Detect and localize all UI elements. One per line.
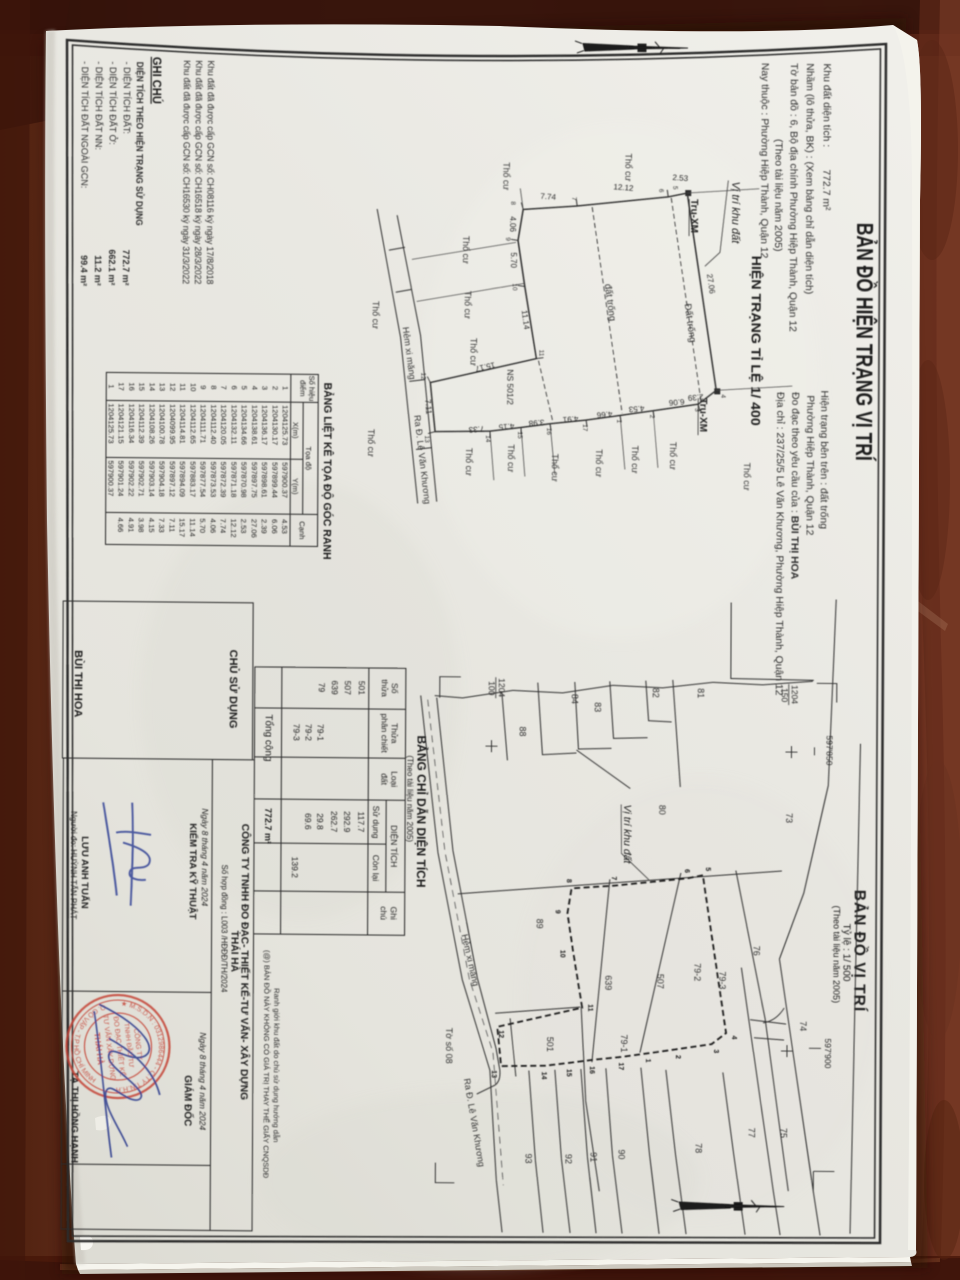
svg-text:2: 2 xyxy=(648,415,655,419)
svg-text:7: 7 xyxy=(610,876,617,880)
svg-text:1: 1 xyxy=(615,419,622,423)
svg-text:7.74: 7.74 xyxy=(540,192,557,202)
svg-text:(Theo tài liệu năm 2005): (Theo tài liệu năm 2005) xyxy=(405,755,414,842)
svg-text:75: 75 xyxy=(779,1128,789,1138)
svg-text:7.33: 7.33 xyxy=(157,518,166,533)
svg-text:4.66: 4.66 xyxy=(116,518,125,533)
svg-text:5.70: 5.70 xyxy=(198,518,207,533)
svg-text:Vị trí khu đất: Vị trí khu đất xyxy=(621,804,633,864)
svg-text:11: 11 xyxy=(586,1004,593,1012)
svg-text:Khu đất đã được cấp GCN số: CH: Khu đất đã được cấp GCN số: CH16518 ký n… xyxy=(193,60,204,284)
svg-text:Vị trí khu đất: Vị trí khu đất xyxy=(729,181,741,244)
svg-text:597877.54: 597877.54 xyxy=(198,461,207,497)
svg-text:1204114.81: 1204114.81 xyxy=(178,404,187,444)
svg-text:Tổng cộng: Tổng cộng xyxy=(262,714,274,761)
svg-text:4: 4 xyxy=(719,394,726,398)
svg-text:17: 17 xyxy=(581,424,588,432)
svg-text:Tờ bản đồ : 6, Bộ địa chính Ph: Tờ bản đồ : 6, Bộ địa chính Phường Hiệp … xyxy=(787,63,800,332)
svg-text:Nay thuộc : Phường Hiệp Thàn: Nay thuộc : Phường Hiệp Thành, Quận 12 xyxy=(758,63,770,259)
svg-text:2.39: 2.39 xyxy=(260,519,269,534)
svg-text:11: 11 xyxy=(178,383,187,391)
svg-text:14: 14 xyxy=(484,435,491,443)
svg-text:89: 89 xyxy=(535,919,545,929)
svg-text:1204132.11: 1204132.11 xyxy=(229,405,238,445)
svg-text:Ngày 8 tháng 4 năm 2: Ngày 8 tháng 4 năm 2024 xyxy=(198,1032,208,1130)
svg-text:507: 507 xyxy=(655,974,665,989)
svg-text:82: 82 xyxy=(651,688,661,698)
svg-text:10: 10 xyxy=(558,950,565,958)
svg-text:16: 16 xyxy=(588,1066,595,1074)
svg-text:1204099.95: 1204099.95 xyxy=(168,404,177,444)
svg-text:1204138.61: 1204138.61 xyxy=(250,405,259,445)
svg-text:Thổ cư: Thổ cư xyxy=(463,291,473,319)
svg-text:12: 12 xyxy=(419,372,426,380)
svg-text:BẢN ĐỒ HIỆN TRẠNG VỊ TRÍ: BẢN ĐỒ HIỆN TRẠNG VỊ TRÍ xyxy=(851,223,880,462)
svg-text:117.7: 117.7 xyxy=(356,812,366,833)
svg-text:CHỦ SỬ DỤNG: CHỦ SỬ DỤNG xyxy=(227,650,240,729)
svg-text:- DIỆN TÍCH ĐẤT Ở:: - DIỆN TÍCH ĐẤT Ở: xyxy=(107,61,118,144)
svg-text:4.66: 4.66 xyxy=(596,409,613,419)
svg-text:292.9: 292.9 xyxy=(342,811,352,833)
svg-text:Tờ số 08: Tờ số 08 xyxy=(444,1028,454,1064)
svg-text:Trụ-XM: Trụ-XM xyxy=(697,398,708,432)
svg-text:150: 150 xyxy=(780,688,790,703)
svg-text:81: 81 xyxy=(696,688,706,698)
svg-text:9: 9 xyxy=(199,385,208,389)
svg-text:2: 2 xyxy=(271,386,280,390)
svg-text:Thổ cư: Thổ cư xyxy=(623,153,633,181)
svg-text:Y(m): Y(m) xyxy=(291,478,300,495)
svg-text:BẢNG LIỆT KÊ TỌA ĐỘ GÓC RANH: BẢNG LIỆT KÊ TỌA ĐỘ GÓC RANH xyxy=(320,382,334,559)
svg-text:6: 6 xyxy=(683,869,690,873)
svg-text:Thổ cư: Thổ cư xyxy=(594,449,604,477)
svg-text:THÁI HÀ: THÁI HÀ xyxy=(228,931,241,973)
svg-text:- DIỆN TÍCH ĐẤT NGOÀI GCN:: - DIỆN TÍCH ĐẤT NGOÀI GCN: xyxy=(79,61,90,188)
svg-text:501: 501 xyxy=(545,1037,555,1052)
svg-text:Hiện trạng bên trên : đất trốn: Hiện trạng bên trên : đất trống xyxy=(818,390,831,529)
svg-text:1204134.66: 1204134.66 xyxy=(240,405,249,445)
svg-text:79-2: 79-2 xyxy=(304,724,314,741)
svg-text:Ngày 8 tháng 4 năm 20: Ngày 8 tháng 4 năm 2024 xyxy=(200,808,210,906)
svg-text:597'900: 597'900 xyxy=(823,1038,833,1068)
svg-text:597873.53: 597873.53 xyxy=(209,461,218,497)
svg-text:Đo đạc theo yêu cầu của : BÙI: Đo đạc theo yêu cầu của : BÙI THỊ HOA xyxy=(788,392,802,580)
svg-text:78: 78 xyxy=(693,1143,703,1153)
svg-text:772.7 m²: 772.7 m² xyxy=(820,169,831,211)
svg-text:139.2: 139.2 xyxy=(290,857,300,879)
svg-text:Thổ cư: Thổ cư xyxy=(468,338,478,366)
svg-text:Thổ cư: Thổ cư xyxy=(464,448,474,476)
svg-text:6: 6 xyxy=(230,385,239,389)
svg-text:597883.17: 597883.17 xyxy=(188,461,197,497)
svg-text:73: 73 xyxy=(784,813,794,823)
svg-text:76: 76 xyxy=(751,946,761,956)
svg-text:BẢN ĐỒ VỊ TRÍ: BẢN ĐỒ VỊ TRÍ xyxy=(850,890,869,1013)
svg-text:597897.75: 597897.75 xyxy=(250,462,259,498)
svg-text:79-3: 79-3 xyxy=(717,971,727,989)
svg-text:639: 639 xyxy=(330,681,340,696)
svg-text:597900.37: 597900.37 xyxy=(280,462,289,498)
svg-text:1204112.40: 1204112.40 xyxy=(209,404,218,444)
svg-text:93: 93 xyxy=(523,1154,533,1164)
svg-text:1204125.73: 1204125.73 xyxy=(106,403,115,443)
svg-text:11.2 m²: 11.2 m² xyxy=(93,255,103,286)
svg-text:NS 501/2: NS 501/2 xyxy=(505,369,515,405)
svg-text:10: 10 xyxy=(511,283,518,291)
svg-text:Thổ cư: Thổ cư xyxy=(506,444,516,472)
svg-text:90: 90 xyxy=(616,1149,626,1159)
svg-text:3: 3 xyxy=(712,1049,719,1053)
svg-text:8: 8 xyxy=(209,385,218,389)
svg-text:điểm: điểm xyxy=(298,380,307,397)
svg-text:(Theo tài liệu năm 2005): (Theo tài liệu năm 2005) xyxy=(772,139,784,252)
svg-text:Thổ cư: Thổ cư xyxy=(461,236,471,264)
svg-text:79: 79 xyxy=(317,683,327,693)
svg-text:16: 16 xyxy=(127,382,136,391)
svg-text:Còn lại: Còn lại xyxy=(371,855,381,882)
svg-text:4.91: 4.91 xyxy=(562,414,579,424)
svg-text:14: 14 xyxy=(540,1072,547,1080)
svg-text:17: 17 xyxy=(617,1062,624,1070)
svg-text:1: 1 xyxy=(107,384,116,388)
svg-text:597900.37: 597900.37 xyxy=(106,460,115,496)
svg-text:597902.71: 597902.71 xyxy=(137,461,146,497)
svg-text:11.14: 11.14 xyxy=(188,518,197,537)
svg-text:15: 15 xyxy=(137,382,146,391)
svg-text:1204120.05: 1204120.05 xyxy=(219,405,228,445)
svg-text:1204125.73: 1204125.73 xyxy=(281,405,290,445)
svg-text:639: 639 xyxy=(603,975,613,990)
svg-text:Thổ cư: Thổ cư xyxy=(371,301,381,329)
svg-text:597870.98: 597870.98 xyxy=(239,462,248,498)
svg-text:7: 7 xyxy=(219,385,228,389)
svg-text:3: 3 xyxy=(260,386,269,390)
svg-text:Sử dụng: Sử dụng xyxy=(371,806,381,839)
svg-text:X(m): X(m) xyxy=(291,422,300,439)
svg-text:1204111.71: 1204111.71 xyxy=(199,404,208,443)
svg-text:Tọa độ: Tọa độ xyxy=(304,447,313,471)
svg-text:4: 4 xyxy=(730,1036,737,1040)
svg-text:12: 12 xyxy=(168,383,177,392)
svg-text:HIỆN TRẠNG TỈ LỆ 1/ 400: HIỆN TRẠNG TỈ LỆ 1/ 400 xyxy=(748,256,764,426)
svg-text:15: 15 xyxy=(516,431,523,439)
svg-text:2.53: 2.53 xyxy=(672,173,689,183)
svg-text:507: 507 xyxy=(343,681,353,696)
svg-text:Địa chỉ : 237/25/5 Lê Văn Khươ: Địa chỉ : 237/25/5 Lê Văn Khương, Phường… xyxy=(773,392,787,696)
svg-text:Số hợp đồng : L003 /HĐĐĐ/TH/20: Số hợp đồng : L003 /HĐĐĐ/TH/2024 xyxy=(219,865,229,994)
svg-text:BẢNG CHỈ DẪN DIỆN TÍCH: BẢNG CHỈ DẪN DIỆN TÍCH xyxy=(414,735,430,887)
svg-text:12.12: 12.12 xyxy=(613,182,634,193)
svg-text:15: 15 xyxy=(565,1069,572,1077)
svg-text:Thổ cư: Thổ cư xyxy=(668,442,678,470)
svg-text:597871.18: 597871.18 xyxy=(229,462,238,498)
svg-text:77: 77 xyxy=(747,1128,757,1138)
svg-text:4.15: 4.15 xyxy=(498,421,515,431)
svg-text:15.17: 15.17 xyxy=(178,518,187,537)
svg-text:13: 13 xyxy=(158,383,167,392)
svg-text:(Theo tài liệu năm 2005): (Theo tài liệu năm 2005) xyxy=(831,906,841,1004)
svg-text:92: 92 xyxy=(563,1154,573,1164)
svg-text:597903.14: 597903.14 xyxy=(147,461,156,497)
svg-text:4.91: 4.91 xyxy=(126,518,135,533)
svg-text:14: 14 xyxy=(148,383,157,392)
svg-text:2: 2 xyxy=(674,1055,681,1059)
svg-text:1204112.39: 1204112.39 xyxy=(137,404,146,444)
svg-text:Loại: Loại xyxy=(389,771,399,787)
svg-text:5: 5 xyxy=(704,867,711,871)
svg-text:662.1 m²: 662.1 m² xyxy=(107,249,117,285)
svg-text:6.06: 6.06 xyxy=(270,519,279,534)
svg-text:83: 83 xyxy=(593,702,603,712)
svg-text:9: 9 xyxy=(504,237,511,241)
svg-text:79-3: 79-3 xyxy=(292,724,302,741)
svg-text:1: 1 xyxy=(281,386,290,390)
svg-text:597902.22: 597902.22 xyxy=(127,461,136,497)
svg-text:772.7 m²: 772.7 m² xyxy=(121,250,131,286)
svg-text:Thổ cư: Thổ cư xyxy=(742,463,752,491)
svg-text:84: 84 xyxy=(570,694,580,704)
svg-text:BÙI THỊ HOA: BÙI THỊ HOA xyxy=(72,650,85,717)
svg-text:Phường Hiệp Thành, Quận 12: Phường Hiệp Thành, Quận 12 xyxy=(804,395,816,535)
svg-text:6: 6 xyxy=(657,189,664,193)
svg-text:4.06: 4.06 xyxy=(508,216,517,232)
svg-text:4: 4 xyxy=(250,386,259,390)
svg-text:79-2: 79-2 xyxy=(692,963,702,981)
svg-text:79-1: 79-1 xyxy=(619,1034,629,1052)
svg-text:1204130.17: 1204130.17 xyxy=(270,405,279,445)
svg-text:5.70: 5.70 xyxy=(509,252,518,268)
svg-text:1204108.26: 1204108.26 xyxy=(147,404,156,444)
svg-text:4.06: 4.06 xyxy=(208,518,217,533)
svg-text:4.15: 4.15 xyxy=(147,518,156,533)
svg-text:Thửa: Thửa xyxy=(390,723,400,744)
svg-text:12: 12 xyxy=(497,1030,504,1038)
svg-text:6.06: 6.06 xyxy=(668,397,685,407)
svg-text:27.06: 27.06 xyxy=(249,519,258,538)
svg-text:GHI CHÚ: GHI CHÚ xyxy=(150,57,163,104)
svg-text:5: 5 xyxy=(240,386,249,390)
svg-text:2.53: 2.53 xyxy=(239,519,248,534)
svg-text:1204136.17: 1204136.17 xyxy=(260,405,269,445)
svg-text:12.12: 12.12 xyxy=(229,519,238,538)
svg-text:LƯU ANH TUẤN: LƯU ANH TUẤN xyxy=(79,836,90,909)
svg-text:501: 501 xyxy=(357,681,367,696)
svg-text:thửa: thửa xyxy=(380,679,390,697)
svg-text:1204: 1204 xyxy=(790,685,800,704)
svg-text:DIỆN TÍCH THEO HIỆN TRẠNG SỬ D: DIỆN TÍCH THEO HIỆN TRẠNG SỬ DỤNG xyxy=(134,62,146,226)
svg-text:29.8: 29.8 xyxy=(315,813,325,830)
svg-text:7.33: 7.33 xyxy=(468,424,485,434)
svg-text:13: 13 xyxy=(490,1070,497,1078)
svg-text:99.4 m²: 99.4 m² xyxy=(79,255,89,286)
svg-text:KIỂM TRA KỸ THUẬT: KIỂM TRA KỸ THUẬT xyxy=(187,823,199,920)
svg-text:7.74: 7.74 xyxy=(219,519,228,534)
svg-text:Nhầm (lô thửa, BK) : (Xem bản: Nhầm (lô thửa, BK) : (Xem bảng chỉ dẫn d… xyxy=(803,63,817,294)
svg-text:69.6: 69.6 xyxy=(303,813,313,830)
svg-text:597897.12: 597897.12 xyxy=(168,461,177,497)
svg-text:chú: chú xyxy=(379,906,389,920)
svg-text:91: 91 xyxy=(588,1152,598,1162)
svg-text:1204116.34: 1204116.34 xyxy=(127,404,136,444)
svg-text:88: 88 xyxy=(518,726,528,736)
svg-text:Thổ cư: Thổ cư xyxy=(366,429,376,457)
svg-text:597901.24: 597901.24 xyxy=(116,461,125,497)
svg-text:Thổ cư: Thổ cư xyxy=(630,446,640,474)
svg-text:80: 80 xyxy=(657,805,667,815)
svg-text:8: 8 xyxy=(509,201,516,205)
svg-text:597894.09: 597894.09 xyxy=(178,461,187,497)
svg-text:Ranh giới khu đất do chủ sử dụ: Ranh giới khu đất do chủ sử dụng hướng d… xyxy=(272,988,282,1142)
svg-text:597904.18: 597904.18 xyxy=(157,461,166,497)
svg-text:Thổ cư: Thổ cư xyxy=(501,162,511,190)
svg-text:79-1: 79-1 xyxy=(316,724,326,741)
svg-text:3.98: 3.98 xyxy=(137,518,146,533)
svg-text:Ghi: Ghi xyxy=(389,907,399,920)
svg-text:Người đo: HUỲNH TẤN PHÁT: Người đo: HUỲNH TẤN PHÁT xyxy=(69,811,80,919)
svg-text:4.53: 4.53 xyxy=(628,404,645,414)
svg-text:Cạnh: Cạnh xyxy=(298,521,307,539)
svg-text:772.7 m²: 772.7 m² xyxy=(263,808,273,844)
svg-text:8: 8 xyxy=(565,879,572,883)
svg-text:4.53: 4.53 xyxy=(280,519,289,534)
svg-text:7: 7 xyxy=(570,197,577,201)
svg-text:9: 9 xyxy=(554,910,561,914)
svg-text:phân chiết: phân chiết xyxy=(379,713,389,753)
svg-text:17: 17 xyxy=(117,382,126,391)
svg-text:10: 10 xyxy=(189,383,198,392)
svg-text:Khu đất đã được cấp GCN số: CH: Khu đất đã được cấp GCN số: CH08116 ký n… xyxy=(205,60,216,284)
svg-text:1: 1 xyxy=(644,1059,651,1063)
svg-text:597898.61: 597898.61 xyxy=(260,462,269,498)
svg-text:Số: Số xyxy=(390,683,400,694)
svg-text:- DIỆN TÍCH ĐẤT:: - DIỆN TÍCH ĐẤT: xyxy=(122,62,132,134)
svg-text:Khu đất diện tích :: Khu đất diện tích : xyxy=(820,63,832,147)
svg-text:Khu đất đã được cấp GCN số: CH: Khu đất đã được cấp GCN số: CH16530 ký n… xyxy=(181,60,192,284)
svg-text:597899.44: 597899.44 xyxy=(270,462,279,498)
svg-text:11: 11 xyxy=(537,350,544,357)
svg-text:16: 16 xyxy=(545,428,552,436)
svg-text:1204112.65: 1204112.65 xyxy=(188,404,197,444)
svg-text:TẠ THỊ HỒNG HẠNH: TẠ THỊ HỒNG HẠNH xyxy=(68,1071,80,1163)
svg-text:7.11: 7.11 xyxy=(167,518,176,532)
svg-text:Số hiệu: Số hiệu xyxy=(307,375,316,401)
svg-text:262.7: 262.7 xyxy=(329,811,339,833)
svg-text:5: 5 xyxy=(671,186,678,190)
svg-text:1204121.15: 1204121.15 xyxy=(117,404,126,444)
svg-text:1204100.78: 1204100.78 xyxy=(158,404,167,444)
svg-text:- DIỆN TÍCH ĐẤT NN:: - DIỆN TÍCH ĐẤT NN: xyxy=(93,61,103,150)
svg-text:74: 74 xyxy=(798,1021,808,1031)
svg-text:Trụ-XM: Trụ-XM xyxy=(688,199,699,233)
svg-text:Thổ cư: Thổ cư xyxy=(550,454,560,482)
svg-text:(@) BẢN ĐỒ NÀY KHÔNG CÓ GIÁ TR: (@) BẢN ĐỒ NÀY KHÔNG CÓ GIÁ TRỊ THAY THẾ… xyxy=(261,950,272,1179)
svg-text:DIỆN TÍCH: DIỆN TÍCH xyxy=(389,825,399,867)
svg-text:đất: đất xyxy=(379,773,389,786)
svg-text:3.98: 3.98 xyxy=(528,418,545,428)
svg-text:597872.39: 597872.39 xyxy=(219,462,228,498)
